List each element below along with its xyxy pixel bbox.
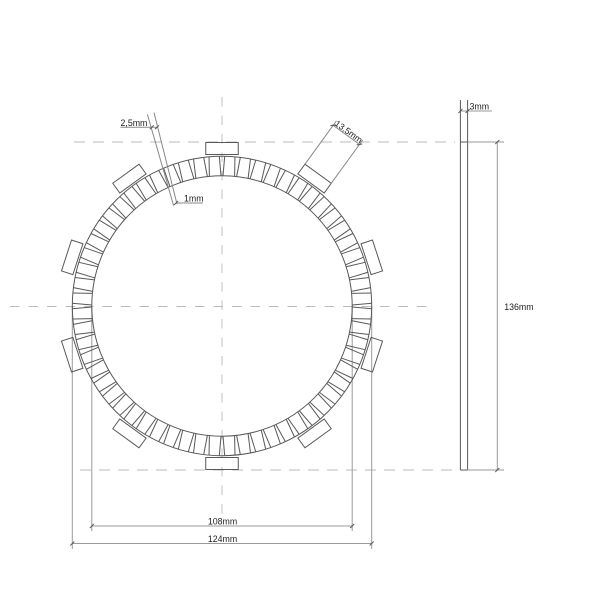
svg-text:3mm: 3mm [470,102,490,112]
svg-text:13,5mm: 13,5mm [333,118,365,145]
svg-text:2,5mm: 2,5mm [121,118,148,128]
svg-text:108mm: 108mm [208,517,237,527]
svg-text:136mm: 136mm [504,302,533,312]
svg-text:1mm: 1mm [184,194,204,204]
svg-text:124mm: 124mm [208,534,237,544]
